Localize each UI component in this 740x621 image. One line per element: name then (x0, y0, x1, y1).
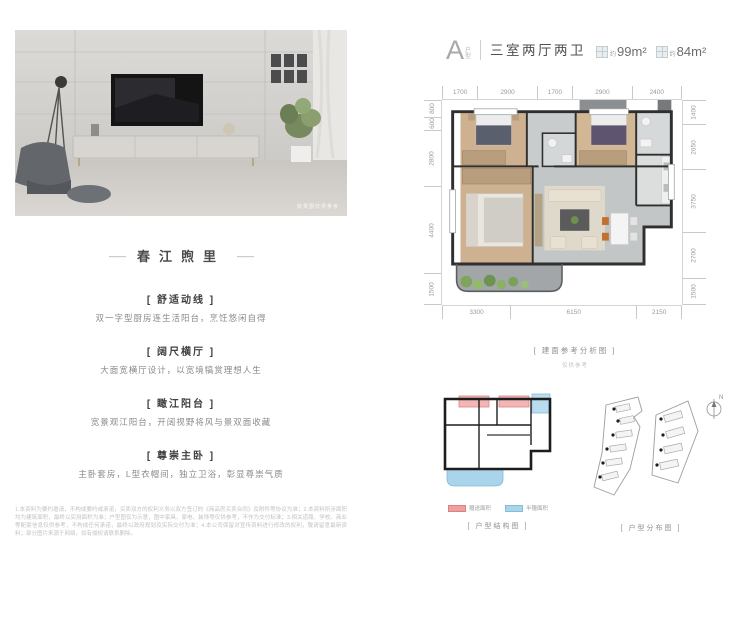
dim-label: 1500 (429, 282, 436, 296)
half-gift-balcony-blue (447, 469, 503, 486)
feature-title: [ 瞰江阳台 ] (15, 395, 347, 410)
dims-top: 1700 2900 1700 2900 2400 (442, 86, 682, 100)
north-label: N (719, 395, 723, 401)
dim-label: 1500 (691, 284, 698, 298)
dim-label: 1700 (453, 89, 467, 96)
dim-segment: 2700 (683, 232, 706, 278)
photo-caption: 效果图仅供参考 (297, 203, 339, 210)
feature-item: [ 阔尺横厅 ] 大面宽横厅设计，以宽境犒赏理想人生 (15, 343, 347, 376)
master-bedroom-furniture (462, 168, 530, 246)
legend-label: 半赠面积 (526, 504, 548, 512)
brand-row: —— 春江煦里 —— (15, 246, 347, 265)
structure-caption: [ 户型结构图 ] (426, 521, 570, 531)
distribution-diagram: N (576, 391, 726, 509)
dim-label: 3750 (691, 194, 698, 208)
plan-caption-sub: 仅供参考 (424, 361, 726, 369)
balcony-floor (457, 264, 562, 291)
legend-item: 赠送面积 (448, 504, 491, 512)
structure-diagram-block: 赠送面积 半赠面积 [ 户型结构图 ] (426, 391, 570, 533)
utility-shaft (658, 100, 672, 112)
dim-segment: 800 (424, 100, 441, 117)
dim-segment: 2900 (477, 86, 537, 99)
structure-diagram (435, 391, 561, 491)
decor-vase (91, 124, 99, 136)
floorplan-grid-icon (596, 46, 608, 58)
dims-right: 1400 2650 3750 2700 1500 (682, 100, 706, 305)
right-panel: A 户型 三室两厅两卫 约 99m² 约 84m² 1700 (424, 38, 726, 533)
dim-label: 1400 (691, 105, 698, 119)
feature-item: [ 瞰江阳台 ] 宽景观江阳台，开阔视野将风与景双面收藏 (15, 395, 347, 428)
distribution-caption: [ 户型分布图 ] (576, 523, 726, 533)
diagrams-row: 赠送面积 半赠面积 [ 户型结构图 ] (424, 391, 726, 533)
feature-title: [ 尊崇主卧 ] (15, 447, 347, 462)
north-arrow-icon: N (707, 395, 723, 419)
dims-bottom: 3300 6150 2150 (442, 305, 682, 319)
area-group: 约 99m² 约 84m² (596, 44, 715, 59)
dim-segment: 2900 (572, 86, 632, 99)
floorplan-grid-icon (656, 46, 668, 58)
dims-left: 800 600 2800 4400 1500 (424, 100, 442, 305)
structure-legend: 赠送面积 半赠面积 (426, 504, 570, 512)
dim-segment: 2800 (424, 130, 441, 186)
tv (111, 74, 203, 126)
area-about: 约 (610, 49, 616, 58)
dim-label: 2700 (691, 249, 698, 263)
header-divider (480, 40, 481, 60)
dim-segment: 1500 (683, 278, 706, 305)
gift-area-red (499, 396, 529, 407)
dim-segment: 6150 (510, 306, 636, 319)
feature-list: [ 舒适动线 ] 双一字型厨房连生活阳台，烹饪悠闲自得 [ 阔尺横厅 ] 大面宽… (15, 291, 347, 480)
area-item-inner: 约 84m² (656, 44, 707, 59)
legend-label: 赠送面积 (469, 504, 491, 512)
living-room-photo-art (15, 30, 347, 216)
brand-dash-right: —— (237, 251, 253, 261)
dim-label: 2400 (650, 89, 664, 96)
bathroom-2-floor (636, 112, 671, 155)
dim-segment: 2400 (632, 86, 682, 99)
blue-swatch-icon (505, 505, 523, 512)
dim-label: 2650 (691, 140, 698, 154)
legal-disclaimer: 1.本资料为要约邀请，不构成要约或承诺，买卖双方的权利义务以双方签订的《商品房买… (15, 506, 347, 538)
inner-area-value: 84m² (677, 44, 707, 59)
decor-sphere (223, 123, 235, 135)
area-item-gross: 约 99m² (596, 44, 647, 59)
left-panel: 效果图仅供参考 —— 春江煦里 —— [ 舒适动线 ] 双一字型厨房连生活阳台，… (15, 30, 347, 538)
dim-segment: 1500 (424, 273, 441, 305)
feature-item: [ 尊崇主卧 ] 主卧套房，L型衣帽间，独立卫浴，彰显尊崇气质 (15, 447, 347, 480)
floor-plan-block: 1700 2900 1700 2900 2400 800 600 2800 44… (424, 86, 726, 319)
feature-desc: 大面宽横厅设计，以宽境犒赏理想人生 (15, 364, 347, 376)
dim-segment: 1400 (683, 100, 706, 124)
distribution-diagram-block: N [ 户型分布图 ] (576, 391, 726, 533)
feature-title: [ 舒适动线 ] (15, 291, 347, 306)
dim-segment: 1700 (537, 86, 572, 99)
dim-label: 2800 (429, 151, 436, 165)
dim-label: 2150 (652, 309, 666, 316)
dim-label: 4400 (429, 223, 436, 237)
rooms-label: 三室两厅两卫 (490, 39, 586, 59)
unit-type-letter: A (446, 38, 464, 62)
feature-item: [ 舒适动线 ] 双一字型厨房连生活阳台，烹饪悠闲自得 (15, 291, 347, 324)
dim-segment: 600 (424, 117, 441, 130)
dim-label: 600 (429, 118, 436, 129)
area-about: 约 (670, 49, 676, 58)
brand-dash-left: —— (109, 251, 125, 261)
dim-segment: 2650 (683, 124, 706, 169)
dim-segment: 4400 (424, 186, 441, 274)
dim-label: 1700 (548, 89, 562, 96)
plan-caption: [ 建面参考分析图 ] (424, 345, 726, 356)
brochure-page: 效果图仅供参考 —— 春江煦里 —— [ 舒适动线 ] 双一字型厨房连生活阳台，… (0, 0, 740, 621)
unit-type-sub: 户型 (465, 48, 473, 60)
feature-desc: 宽景观江阳台，开阔视野将风与景双面收藏 (15, 416, 347, 428)
dim-segment: 2150 (636, 306, 682, 319)
feature-desc: 主卧套房，L型衣帽间，独立卫浴，彰显尊崇气质 (15, 468, 347, 480)
legend-item: 半赠面积 (505, 504, 548, 512)
dim-label: 800 (429, 103, 436, 114)
red-swatch-icon (448, 505, 466, 512)
dim-segment: 3300 (442, 306, 510, 319)
dim-segment: 3750 (683, 169, 706, 232)
floor-plan (442, 100, 682, 305)
dim-segment: 1700 (442, 86, 477, 99)
brand-name: 春江煦里 (137, 246, 225, 265)
floor-plan-drawing (442, 100, 682, 305)
feature-desc: 双一字型厨房连生活阳台，烹饪悠闲自得 (15, 312, 347, 324)
dim-label: 6150 (566, 309, 580, 316)
gift-area-red (459, 396, 489, 407)
feature-title: [ 阔尺横厅 ] (15, 343, 347, 358)
tv-console (535, 194, 543, 247)
living-room-photo: 效果图仅供参考 (15, 30, 347, 216)
dim-label: 2900 (500, 89, 514, 96)
living-room-furniture (535, 186, 605, 250)
dim-label: 3300 (469, 309, 483, 316)
plan-header: A 户型 三室两厅两卫 约 99m² 约 84m² (446, 38, 726, 62)
dim-label: 2900 (595, 89, 609, 96)
gross-area-value: 99m² (617, 44, 647, 59)
half-gift-area-blue (532, 394, 550, 413)
